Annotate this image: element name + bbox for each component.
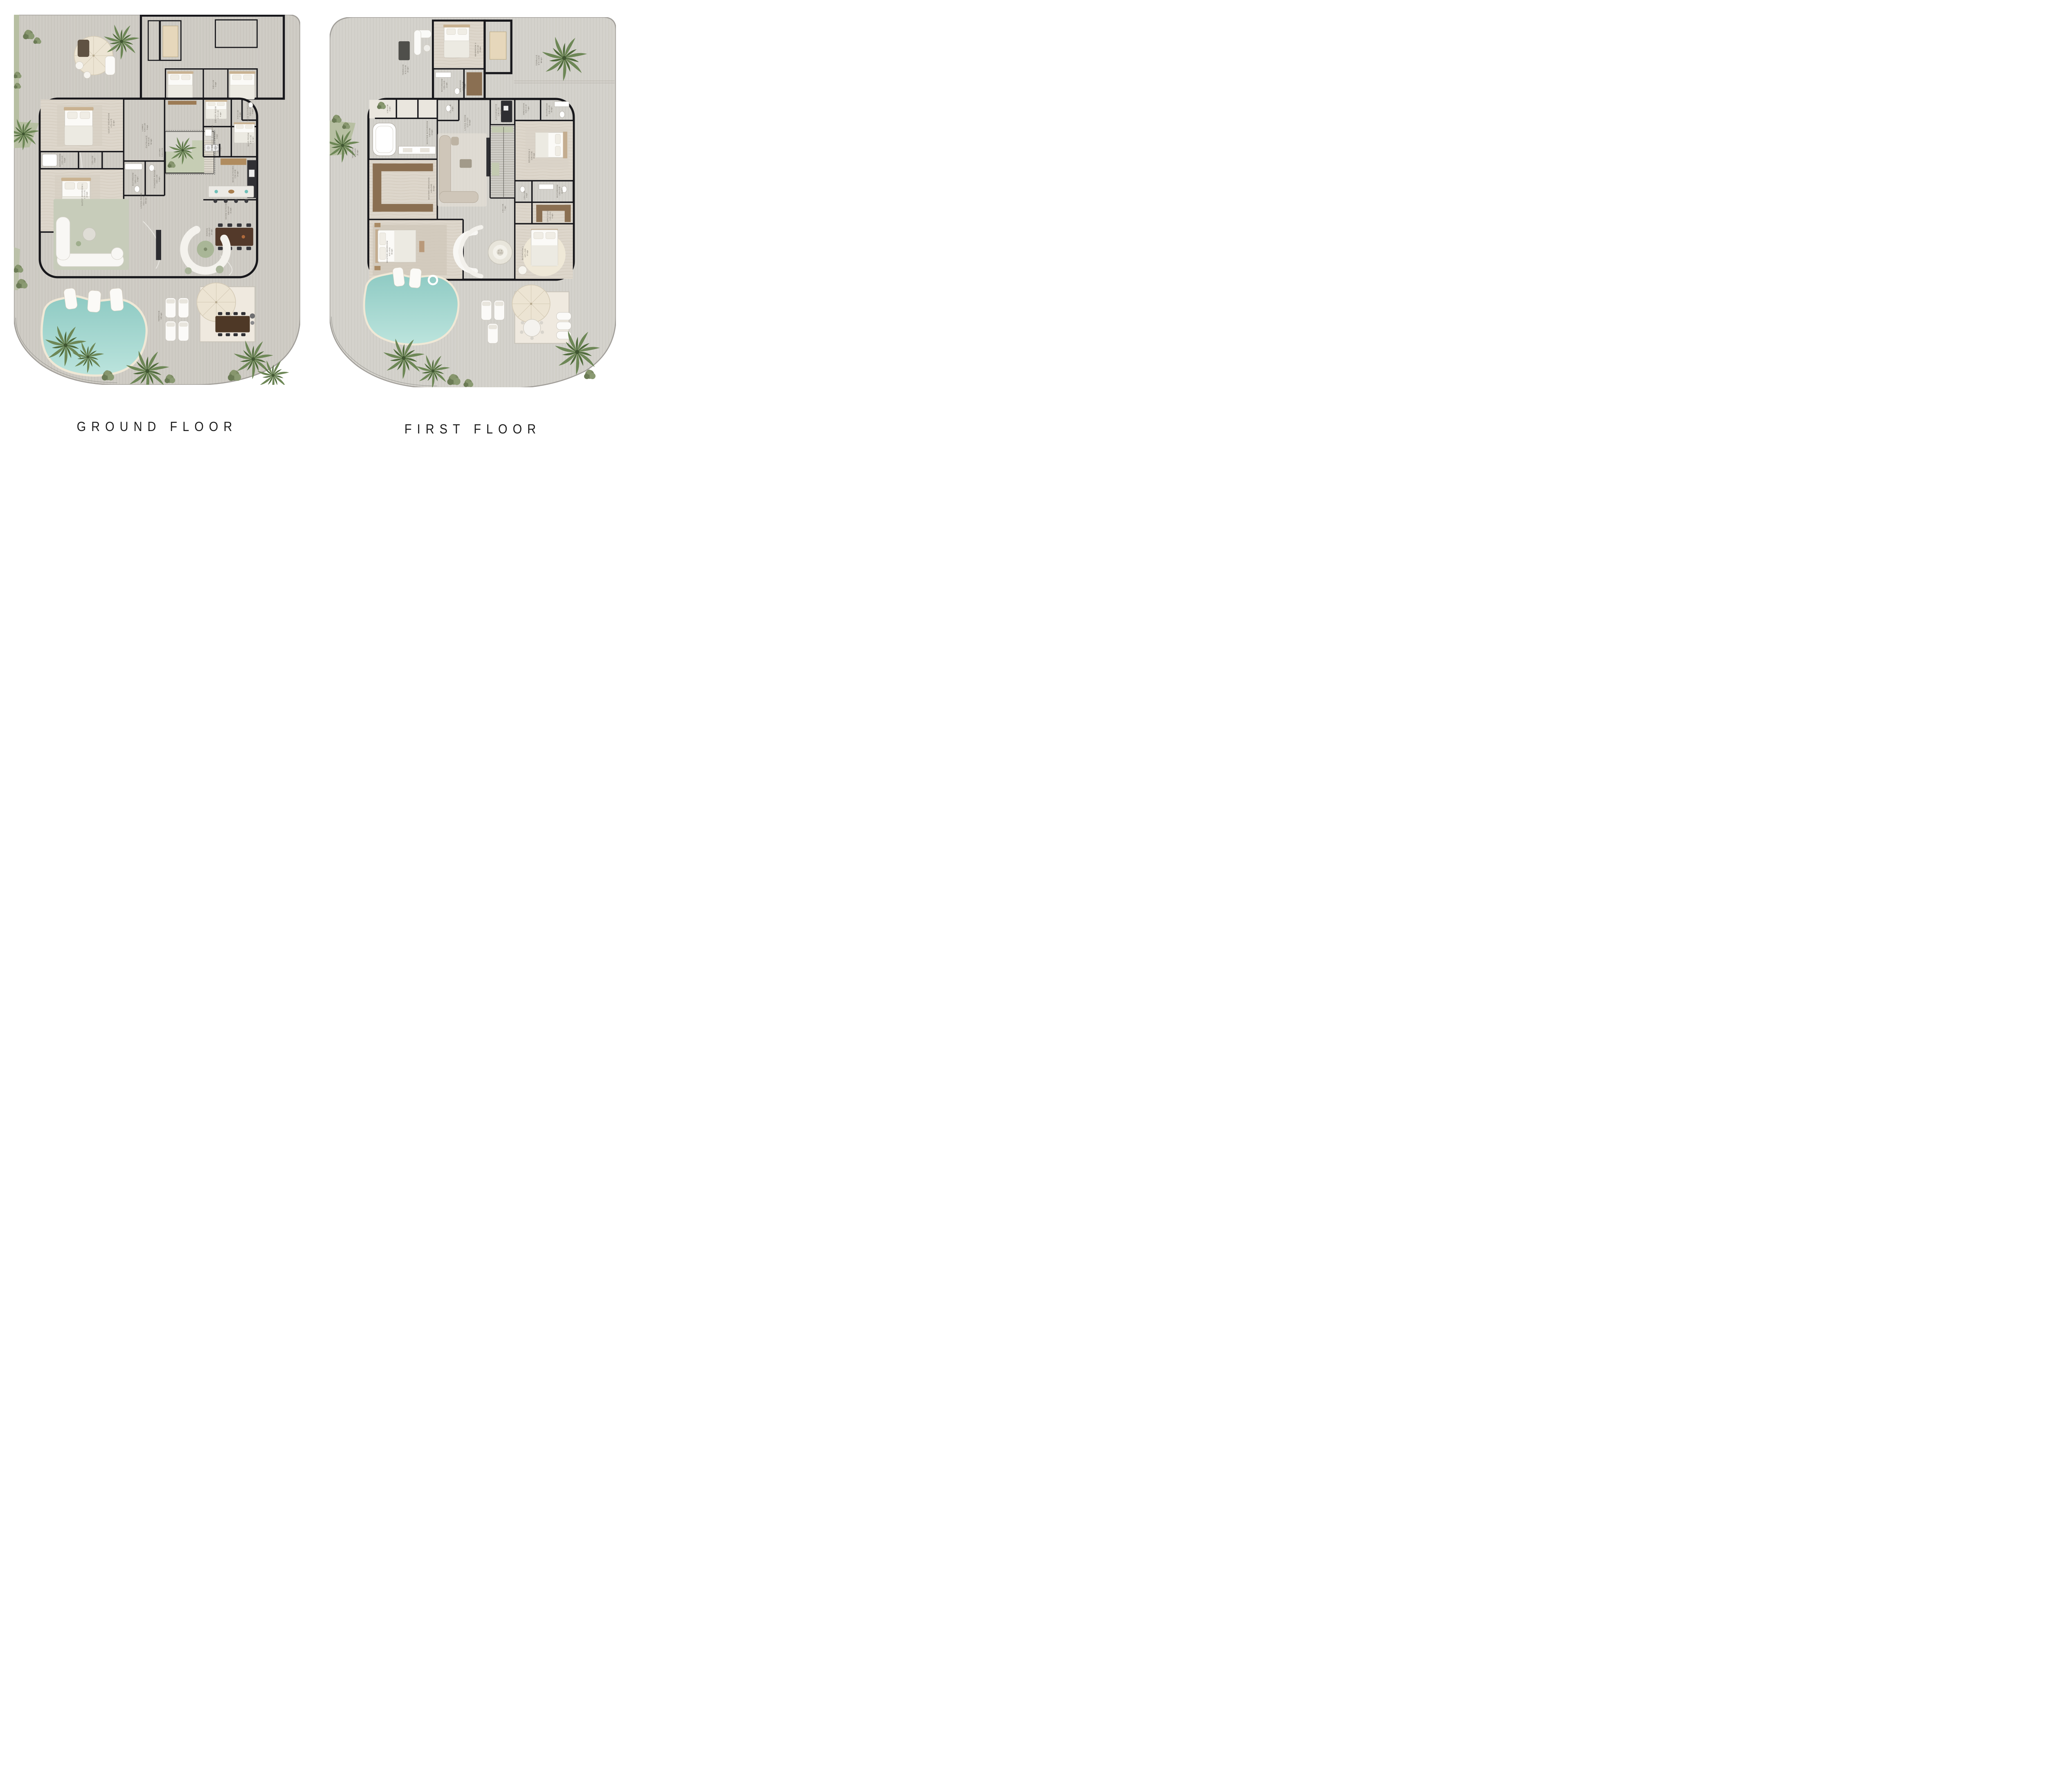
svg-text:3.69 x 1.20: 3.69 x 1.20 — [212, 80, 214, 89]
first-living-room — [437, 133, 490, 207]
svg-text:3.73 x 2.00: 3.73 x 2.00 — [462, 81, 464, 90]
svg-text:4 sqm: 4 sqm — [219, 112, 221, 117]
svg-text:4.90 x 5.40: 4.90 x 5.40 — [477, 45, 479, 54]
svg-text:2.72 x 1.20: 2.72 x 1.20 — [237, 110, 239, 119]
svg-text:6.93 x 5.97: 6.93 x 5.97 — [209, 227, 211, 236]
svg-text:156 sqm: 156 sqm — [145, 197, 147, 204]
svg-text:21 sqm: 21 sqm — [230, 207, 232, 213]
svg-text:2.99 x 2.10: 2.99 x 2.10 — [61, 155, 63, 164]
svg-text:9.44 x 2.70: 9.44 x 2.70 — [161, 148, 163, 157]
svg-text:545 sqm: 545 sqm — [160, 312, 162, 319]
svg-text:8.73 x 3.01: 8.73 x 3.01 — [354, 148, 356, 157]
svg-text:1.50 x 2.30: 1.50 x 2.30 — [91, 155, 93, 164]
svg-text:4.75 x 4.70: 4.75 x 4.70 — [83, 190, 85, 199]
svg-text:1.80 x 3.35: 1.80 x 3.35 — [217, 144, 219, 153]
svg-text:22 sqm: 22 sqm — [112, 120, 115, 126]
svg-text:4.44 x 1.95: 4.44 x 1.95 — [144, 123, 146, 132]
svg-text:6 sqm: 6 sqm — [158, 177, 160, 182]
svg-text:6 sqm: 6 sqm — [500, 109, 502, 114]
svg-text:10 sqm: 10 sqm — [252, 137, 254, 143]
first-floor-panel: TERRACE8.73 x 3.3329 sqm BEDROOM 34.90 x… — [330, 17, 616, 389]
svg-text:3 sqm: 3 sqm — [216, 134, 218, 139]
svg-text:3 sqm: 3 sqm — [94, 157, 96, 162]
svg-text:8.73 x 3.33: 8.73 x 3.33 — [405, 65, 407, 74]
svg-text:64 sqm: 64 sqm — [469, 119, 471, 126]
svg-text:2.60 x 3.48: 2.60 x 3.48 — [559, 186, 561, 195]
ground-floor-title: GROUND FLOOR — [14, 420, 300, 435]
svg-text:3 sqm: 3 sqm — [252, 109, 254, 114]
first-floor-plan: TERRACE8.73 x 3.3329 sqm BEDROOM 34.90 x… — [330, 17, 616, 387]
svg-text:52 sqm: 52 sqm — [150, 139, 152, 145]
svg-text:3.05 x 2.10: 3.05 x 2.10 — [135, 175, 137, 184]
svg-text:4.25 x 5.93: 4.25 x 5.93 — [430, 184, 432, 193]
svg-text:10 sqm: 10 sqm — [561, 188, 563, 194]
svg-text:3.05 x 1.95: 3.05 x 1.95 — [156, 175, 158, 184]
svg-text:3 sqm: 3 sqm — [526, 193, 528, 198]
svg-text:3.20 x 2.10: 3.20 x 2.10 — [525, 104, 527, 113]
svg-text:2.93 x 2.55: 2.93 x 2.55 — [502, 204, 504, 213]
svg-text:7 sqm: 7 sqm — [504, 206, 506, 211]
pool-loungers — [63, 287, 124, 312]
svg-text:10 sqm: 10 sqm — [551, 107, 553, 113]
svg-text:2.40 x 3.91: 2.40 x 3.91 — [549, 211, 551, 220]
svg-text:22 sqm: 22 sqm — [86, 191, 88, 198]
svg-text:8.72 x 10.09: 8.72 x 10.09 — [538, 55, 540, 65]
svg-text:1.69 x 2.05: 1.69 x 2.05 — [213, 132, 216, 141]
svg-text:4.70 x 4.75: 4.70 x 4.75 — [110, 119, 112, 128]
svg-text:9.97 x 9.01: 9.97 x 9.01 — [389, 247, 391, 256]
svg-text:25 sqm: 25 sqm — [433, 185, 435, 191]
svg-text:3.50 x 5.97: 3.50 x 5.97 — [227, 206, 229, 215]
svg-text:3.58 x 3.20: 3.58 x 3.20 — [443, 81, 445, 90]
svg-text:2.34 x 5.60: 2.34 x 5.60 — [234, 169, 236, 178]
svg-text:9 sqm: 9 sqm — [551, 213, 553, 218]
svg-text:14 sqm: 14 sqm — [236, 171, 238, 177]
svg-text:1.71 x 1.60: 1.71 x 1.60 — [449, 104, 451, 113]
svg-text:2.00 x 1.70: 2.00 x 1.70 — [249, 107, 252, 116]
svg-text:2.72 x 1.32: 2.72 x 1.32 — [217, 110, 219, 119]
svg-text:4.98 x 5.85: 4.98 x 5.85 — [530, 151, 533, 160]
svg-text:3 sqm: 3 sqm — [452, 106, 454, 111]
first-floor-title: FIRST FLOOR — [330, 422, 616, 437]
svg-text:7 sqm: 7 sqm — [527, 106, 529, 111]
svg-text:1.78 x 1.85: 1.78 x 1.85 — [387, 104, 389, 113]
master-bedroom — [373, 223, 447, 275]
svg-text:6 sqm: 6 sqm — [219, 146, 221, 151]
svg-text:2.36 x 2.55: 2.36 x 2.55 — [497, 107, 499, 116]
floor-plan-sheet: ENTRANCE9.66 x 5.4152 sqm LIVING ROOM9.0… — [0, 0, 660, 448]
svg-text:88 sqm: 88 sqm — [540, 57, 542, 63]
svg-text:29 sqm: 29 sqm — [533, 153, 535, 159]
svg-text:5 sqm: 5 sqm — [215, 82, 217, 87]
svg-text:3 sqm: 3 sqm — [239, 112, 241, 117]
svg-text:4.87 x 5.85: 4.87 x 5.85 — [524, 248, 526, 257]
svg-text:26 sqm: 26 sqm — [357, 150, 359, 156]
ground-floor-panel: ENTRANCE9.66 x 5.4152 sqm LIVING ROOM9.0… — [14, 15, 300, 387]
svg-text:6 sqm: 6 sqm — [137, 177, 139, 182]
bedroom2 — [526, 128, 569, 168]
svg-text:2.39 x 6.08: 2.39 x 6.08 — [429, 128, 431, 137]
svg-text:9.66 x 5.41: 9.66 x 5.41 — [148, 137, 150, 146]
svg-text:3.30 x 3.05: 3.30 x 3.05 — [548, 105, 550, 114]
ground-floor-plan: ENTRANCE9.66 x 5.4152 sqm LIVING ROOM9.0… — [14, 15, 300, 385]
svg-text:11 sqm: 11 sqm — [445, 82, 447, 88]
courtyard-garden — [164, 130, 215, 174]
svg-text:90 sqm: 90 sqm — [391, 249, 393, 255]
svg-text:27 sqm: 27 sqm — [526, 250, 528, 256]
svg-text:4.36 x 2.35: 4.36 x 2.35 — [250, 135, 252, 144]
svg-text:11.57 x 5.53: 11.57 x 5.53 — [467, 118, 469, 128]
svg-text:9 sqm: 9 sqm — [146, 125, 148, 130]
svg-text:6 sqm: 6 sqm — [63, 157, 65, 162]
svg-text:6 sqm: 6 sqm — [464, 83, 466, 88]
svg-text:37 sqm: 37 sqm — [211, 229, 213, 235]
svg-text:1.64 x 1.85: 1.64 x 1.85 — [523, 191, 525, 200]
svg-text:14 sqm: 14 sqm — [431, 130, 433, 136]
svg-text:26 sqm: 26 sqm — [479, 46, 481, 52]
svg-text:3 sqm: 3 sqm — [389, 106, 391, 111]
svg-text:29 sqm: 29 sqm — [407, 67, 409, 73]
first-pool — [364, 267, 458, 344]
svg-text:9.01 x 17.32: 9.01 x 17.32 — [143, 195, 145, 205]
